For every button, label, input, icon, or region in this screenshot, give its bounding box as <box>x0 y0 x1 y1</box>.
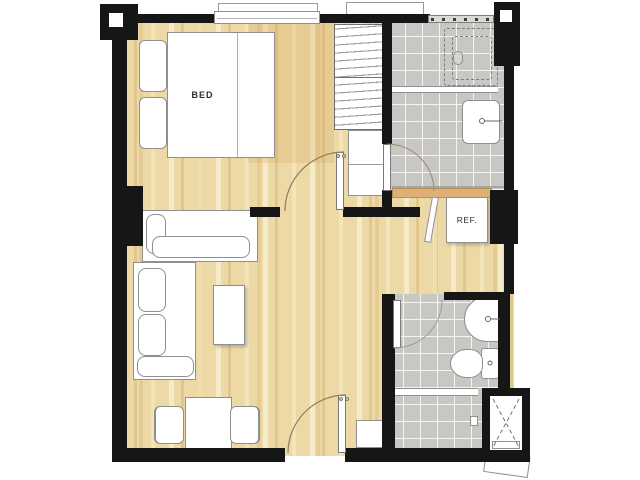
wardrobe <box>334 24 384 130</box>
double-bed: BED <box>167 32 275 158</box>
bathroom-window <box>428 15 494 23</box>
toilet-tank <box>481 348 499 379</box>
shower-door-handle <box>470 416 478 426</box>
wall-bedroom-divider <box>250 207 280 217</box>
column-core <box>500 10 512 22</box>
sofa-armrest <box>137 356 194 377</box>
wall-top <box>318 14 430 23</box>
wall-top <box>128 14 218 23</box>
shower-drain <box>453 51 463 65</box>
shower-partition <box>390 86 498 93</box>
wall-bathroom-top <box>382 190 392 209</box>
sofa-cushion <box>138 268 166 312</box>
toilet-bowl <box>450 349 483 378</box>
sofa-cushion <box>138 314 166 356</box>
wall-bottom <box>112 448 285 462</box>
wall-bathroom-top <box>382 20 392 144</box>
coffee-table <box>213 285 245 345</box>
dining-table <box>185 397 232 453</box>
pillar-right <box>490 190 518 244</box>
bathroom-door-leaf <box>393 300 401 348</box>
vanity-sink <box>462 100 500 144</box>
bed-label: BED <box>168 33 237 157</box>
dining-chair <box>154 406 184 444</box>
pillow <box>139 40 167 92</box>
refrigerator: REF. <box>446 197 488 243</box>
pillar-left <box>112 186 143 246</box>
dining-chair <box>230 406 260 444</box>
shaft-sill <box>492 441 520 449</box>
shower-partition <box>386 388 478 396</box>
entry-cabinet <box>356 420 383 448</box>
entrance-door-leaf <box>338 395 346 453</box>
bathroom-door-leaf <box>383 144 391 191</box>
wall-right <box>504 62 514 192</box>
storage-cabinet <box>348 130 384 196</box>
wall-right <box>498 294 510 392</box>
sofa-seat-cushion <box>152 236 250 258</box>
wall-bathroom-bottom <box>444 292 504 300</box>
refrigerator-label: REF. <box>447 198 487 242</box>
bedroom-door-leaf <box>336 152 344 210</box>
pillow <box>139 97 167 149</box>
column-core <box>109 13 123 27</box>
bedroom-window <box>214 11 320 24</box>
wall-bottom <box>345 448 500 462</box>
floor-plan: BED REF. <box>0 0 640 480</box>
wall-right <box>504 244 514 294</box>
